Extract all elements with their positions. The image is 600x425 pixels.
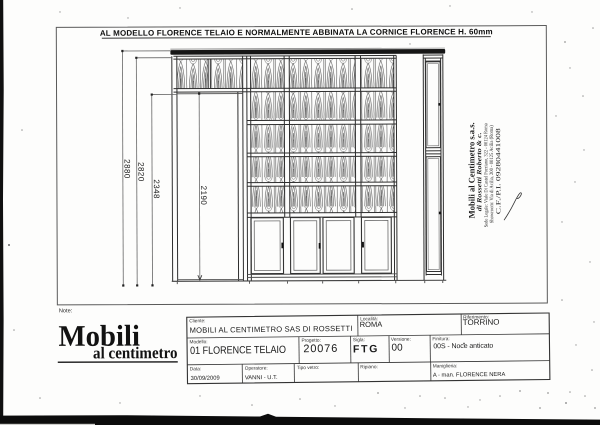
svg-text:2348: 2348 — [152, 179, 161, 199]
svg-text:di Rossetti Roberto & c.: di Rossetti Roberto & c. — [476, 132, 483, 211]
svg-text:C.F./P.I. 09280441008: C.F./P.I. 09280441008 — [495, 128, 502, 214]
svg-text:Note:: Note: — [59, 308, 73, 314]
svg-text:Ripiano:: Ripiano: — [360, 364, 378, 370]
svg-text:00: 00 — [391, 343, 403, 354]
svg-text:MOBILI AL CENTIMETRO SAS DI RO: MOBILI AL CENTIMETRO SAS DI ROSSETTI — [190, 324, 353, 335]
svg-text:Maniglieria:: Maniglieria: — [433, 363, 458, 369]
svg-text:2880: 2880 — [122, 159, 131, 179]
svg-text:VANNI - U.T.: VANNI - U.T. — [245, 375, 278, 381]
svg-text:TORRINO: TORRINO — [463, 318, 500, 327]
svg-text:Tipo vetro:: Tipo vetro: — [297, 365, 320, 371]
svg-text:2820: 2820 — [136, 162, 145, 182]
svg-text:AL MODELLO FLORENCE TELAIO E N: AL MODELLO FLORENCE TELAIO E NORMALMENTE… — [100, 27, 493, 38]
svg-text:Finitura:: Finitura: — [432, 336, 449, 342]
svg-text:30/09/2009: 30/09/2009 — [191, 376, 220, 382]
svg-text:FTG: FTG — [353, 343, 378, 355]
svg-text:A - man. FLORENCE NERA: A - man. FLORENCE NERA — [433, 372, 506, 379]
svg-text:20076: 20076 — [303, 343, 337, 355]
svg-text:2190: 2190 — [199, 186, 208, 206]
svg-text:Sigla:: Sigla: — [353, 337, 365, 343]
svg-text:al centimetro: al centimetro — [93, 343, 178, 362]
svg-text:Operatore:: Operatore: — [245, 365, 268, 371]
svg-text:ROMA: ROMA — [360, 320, 383, 329]
svg-text:Showroom: Via di Acilia, 200 -: Showroom: Via di Acilia, 200 - 00125 Aci… — [488, 125, 495, 223]
svg-text:Data:: Data: — [190, 366, 202, 372]
svg-text:Mobili al Centimetro s.a.s.: Mobili al Centimetro s.a.s. — [466, 122, 476, 218]
svg-text:01 FLORENCE TELAIO: 01 FLORENCE TELAIO — [190, 344, 286, 357]
svg-text:Cliente:: Cliente: — [189, 318, 205, 324]
